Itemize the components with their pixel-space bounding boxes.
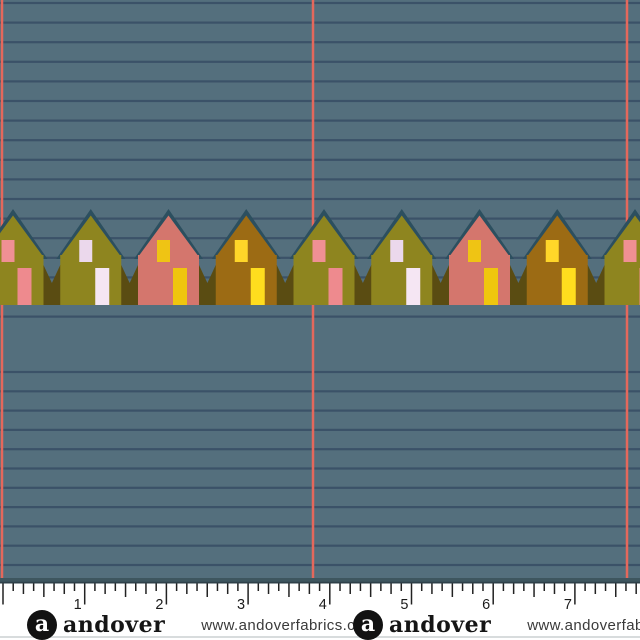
woven-stripe: [0, 41, 640, 43]
ruler-tick: [23, 584, 25, 595]
ruler-tick: [503, 584, 505, 592]
woven-stripe: [0, 139, 640, 141]
house-window: [624, 240, 637, 262]
house-body: [605, 255, 640, 305]
house-body: [294, 255, 355, 305]
house-door: [251, 268, 265, 305]
woven-stripe: [0, 525, 640, 527]
ruler-tick: [247, 584, 249, 605]
fabric-swatch-image: 1234567 aandoverwww.andoverfabrics.comaa…: [0, 0, 640, 640]
ruler-tick: [452, 584, 454, 598]
ruler-tick: [472, 584, 474, 595]
house-body: [216, 255, 277, 305]
ruler-tick: [319, 584, 321, 592]
ruler-tick: [166, 584, 168, 605]
brand-name: andover: [63, 612, 165, 638]
ruler-tick: [421, 584, 423, 592]
ruler-tick: [523, 584, 525, 592]
ruler-tick: [217, 584, 219, 592]
ruler-tick: [196, 584, 198, 592]
house-door: [95, 268, 109, 305]
ruler-tick: [401, 584, 403, 592]
house-window: [235, 240, 248, 262]
woven-stripe: [0, 371, 640, 373]
house-body: [449, 255, 510, 305]
ruler-tick: [574, 584, 576, 605]
ruler-tick: [64, 584, 66, 595]
ruler-tick: [554, 584, 556, 595]
ruler-tick: [462, 584, 464, 592]
ruler-tick: [544, 584, 546, 592]
woven-stripe: [0, 120, 640, 122]
ruler-tick: [176, 584, 178, 592]
ruler-tick: [349, 584, 351, 595]
woven-stripe: [0, 316, 640, 318]
woven-stripe: [0, 410, 640, 412]
woven-stripe: [0, 100, 640, 102]
house-window: [546, 240, 559, 262]
andover-logo-icon: a: [27, 610, 57, 640]
house-window: [2, 240, 15, 262]
ruler-tick: [135, 584, 137, 592]
woven-stripe: [0, 61, 640, 63]
house-window: [313, 240, 326, 262]
woven-stripe: [0, 429, 640, 431]
ruler-tick: [390, 584, 392, 595]
ruler-tick: [74, 584, 76, 592]
ruler-tick: [482, 584, 484, 592]
ruler-tick: [370, 584, 372, 598]
brand-name: andover: [389, 612, 491, 638]
woven-stripe: [0, 198, 640, 200]
ruler-tick: [288, 584, 290, 598]
ruler-tick: [237, 584, 239, 592]
ruler-tick: [492, 584, 494, 605]
ruler-tick: [533, 584, 535, 598]
woven-stripe: [0, 564, 640, 566]
ruler-tick: [2, 584, 4, 605]
ruler-tick: [227, 584, 229, 595]
house-door: [329, 268, 343, 305]
woven-stripe: [0, 506, 640, 508]
ruler-tick: [186, 584, 188, 595]
andover-branding: aandoverwww.andoverfabrics.com: [27, 610, 377, 640]
ruler-tick: [84, 584, 86, 605]
woven-stripe: [0, 2, 640, 4]
ruler-tick: [104, 584, 106, 595]
ruler-tick: [125, 584, 127, 598]
house-body: [60, 255, 121, 305]
ruler-tick: [43, 584, 45, 598]
ruler-tick: [329, 584, 331, 605]
woven-stripe: [0, 80, 640, 82]
house-body: [371, 255, 432, 305]
woven-stripe: [0, 467, 640, 469]
woven-stripe: [0, 159, 640, 161]
ruler-tick: [145, 584, 147, 595]
ruler-tick: [115, 584, 117, 592]
ruler-tick: [513, 584, 515, 595]
ruler-tick: [625, 584, 627, 592]
house-door: [562, 268, 576, 305]
ruler-tick: [298, 584, 300, 592]
ruler-shadow-edge: [0, 582, 640, 584]
fabric-pattern: [0, 0, 640, 578]
andover-branding: aandoverwww.andoverfabrics.com: [353, 610, 640, 640]
ruler-tick: [33, 584, 35, 592]
ruler-tick: [207, 584, 209, 598]
woven-stripe: [0, 448, 640, 450]
ruler-tick: [278, 584, 280, 592]
ruler-tick: [339, 584, 341, 592]
ruler-tick: [595, 584, 597, 595]
woven-stripe: [0, 545, 640, 547]
ruler-tick: [258, 584, 260, 592]
ruler-tick: [584, 584, 586, 592]
woven-stripe: [0, 178, 640, 180]
ruler-tick: [564, 584, 566, 592]
house-window: [390, 240, 403, 262]
ruler-tick: [441, 584, 443, 592]
ruler-tick: [53, 584, 55, 592]
ruler-tick: [411, 584, 413, 605]
ruler: 1234567 aandoverwww.andoverfabrics.comaa…: [0, 578, 640, 640]
ruler-tick: [431, 584, 433, 595]
house-body: [138, 255, 199, 305]
house-body: [527, 255, 588, 305]
ruler-tick: [309, 584, 311, 595]
house-door: [173, 268, 187, 305]
woven-stripe: [0, 22, 640, 24]
woven-stripe: [0, 487, 640, 489]
ruler-tick: [155, 584, 157, 592]
house-door: [406, 268, 420, 305]
house-window: [468, 240, 481, 262]
house-door: [484, 268, 498, 305]
brand-url: www.andoverfabrics.com: [201, 617, 377, 634]
ruler-tick: [605, 584, 607, 592]
ruler-tick: [615, 584, 617, 598]
ruler-tick: [268, 584, 270, 595]
ruler-tick: [94, 584, 96, 592]
house-door: [18, 268, 32, 305]
andover-logo-icon: a: [353, 610, 383, 640]
ruler-tick: [380, 584, 382, 592]
house-window: [157, 240, 170, 262]
ruler-tick: [360, 584, 362, 592]
ruler-tick: [635, 584, 637, 595]
house-window: [79, 240, 92, 262]
brand-url: www.andoverfabrics.com: [527, 617, 640, 634]
ruler-tick: [12, 584, 14, 592]
woven-stripe: [0, 390, 640, 392]
